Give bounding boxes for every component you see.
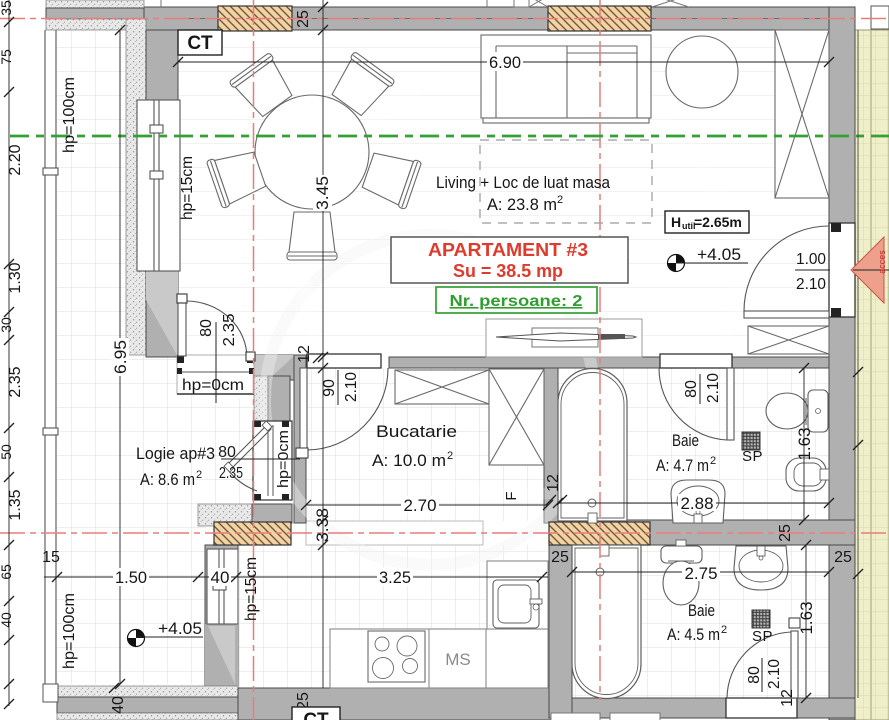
svg-text:2.20: 2.20 [7,144,24,175]
svg-text:3.38: 3.38 [313,508,332,542]
svg-text:A: 23.8 m: A: 23.8 m [487,195,557,214]
svg-text:A: 10.0 m: A: 10.0 m [372,451,446,470]
svg-text:3.25: 3.25 [379,568,411,587]
svg-text:2: 2 [721,624,727,636]
svg-text:25: 25 [834,549,852,566]
svg-text:A: 4.5 m: A: 4.5 m [667,625,720,644]
svg-text:15: 15 [42,549,60,566]
svg-text:12: 12 [545,474,562,492]
svg-text:2.10: 2.10 [343,372,360,402]
svg-text:2.10: 2.10 [705,373,722,403]
svg-text:2: 2 [196,469,202,481]
svg-text:6.90: 6.90 [489,53,521,72]
svg-text:75: 75 [0,49,14,65]
svg-text:A: 8.6 m: A: 8.6 m [140,470,195,489]
svg-text:35: 35 [0,0,14,16]
svg-text:65: 65 [0,564,14,580]
svg-text:A: 4.7 m: A: 4.7 m [656,456,709,475]
svg-text:50: 50 [0,444,14,460]
svg-text:1.35: 1.35 [7,489,24,520]
svg-text:acces: acces [877,250,887,274]
svg-text:1.63: 1.63 [795,428,814,461]
svg-text:hp=0cm: hp=0cm [275,430,292,488]
svg-text:80: 80 [746,666,763,684]
svg-text:hp=100cm: hp=100cm [61,77,78,153]
svg-text:25: 25 [551,549,569,566]
svg-text:hp=0cm: hp=0cm [182,377,244,394]
svg-text:3.45: 3.45 [313,176,332,210]
svg-text:6.95: 6.95 [111,340,130,374]
svg-text:SP: SP [742,448,763,465]
svg-text:2.70: 2.70 [404,496,437,515]
svg-text:2.88: 2.88 [681,494,714,513]
svg-text:CT: CT [187,33,213,54]
svg-text:APARTAMENT #3: APARTAMENT #3 [428,240,588,260]
svg-text:F: F [503,491,520,500]
svg-text:hp=15cm: hp=15cm [179,156,196,220]
svg-text:Baie: Baie [672,431,699,450]
svg-text:1.50: 1.50 [115,568,147,587]
svg-text:Living + Loc de luat masa: Living + Loc de luat masa [436,173,610,192]
svg-text:25: 25 [777,524,794,542]
svg-text:+4.05: +4.05 [697,245,741,264]
svg-text:Bucatarie: Bucatarie [376,422,457,441]
svg-text:40: 40 [110,696,127,714]
svg-text:Su = 38.5 mp: Su = 38.5 mp [453,261,563,281]
svg-text:1.00: 1.00 [796,251,826,268]
svg-text:hp=15cm: hp=15cm [243,557,260,621]
svg-text:2: 2 [710,455,716,467]
svg-text:12: 12 [296,345,313,363]
svg-text:40: 40 [211,568,230,587]
svg-text:1.63: 1.63 [797,602,816,635]
svg-text:25: 25 [295,10,312,28]
svg-text:Baie: Baie [688,601,715,620]
svg-text:1.30: 1.30 [7,262,24,293]
svg-text:+4.05: +4.05 [158,619,202,638]
svg-text:=2.65m: =2.65m [694,214,742,230]
svg-text:90: 90 [321,379,338,397]
svg-text:2.75: 2.75 [685,564,718,583]
svg-text:Nr. persoane: 2: Nr. persoane: 2 [450,293,583,310]
svg-text:2.35: 2.35 [221,313,238,346]
svg-text:CT: CT [303,710,329,720]
svg-text:2: 2 [447,450,453,462]
svg-text:80: 80 [683,380,700,398]
svg-text:2.10: 2.10 [766,659,783,689]
svg-text:80: 80 [198,319,215,337]
svg-text:H: H [671,214,681,230]
svg-text:2.35: 2.35 [7,366,24,397]
svg-text:2.10: 2.10 [796,276,826,293]
svg-text:MS: MS [445,650,471,669]
svg-text:40: 40 [0,612,14,628]
svg-text:hp=100cm: hp=100cm [61,593,78,669]
svg-text:30: 30 [0,317,14,333]
svg-text:SP: SP [752,628,773,645]
svg-text:2.35: 2.35 [219,465,243,482]
svg-text:12: 12 [779,689,796,707]
svg-text:2: 2 [557,194,563,206]
svg-text:Logie ap#3: Logie ap#3 [136,444,215,463]
svg-text:80: 80 [218,444,236,461]
